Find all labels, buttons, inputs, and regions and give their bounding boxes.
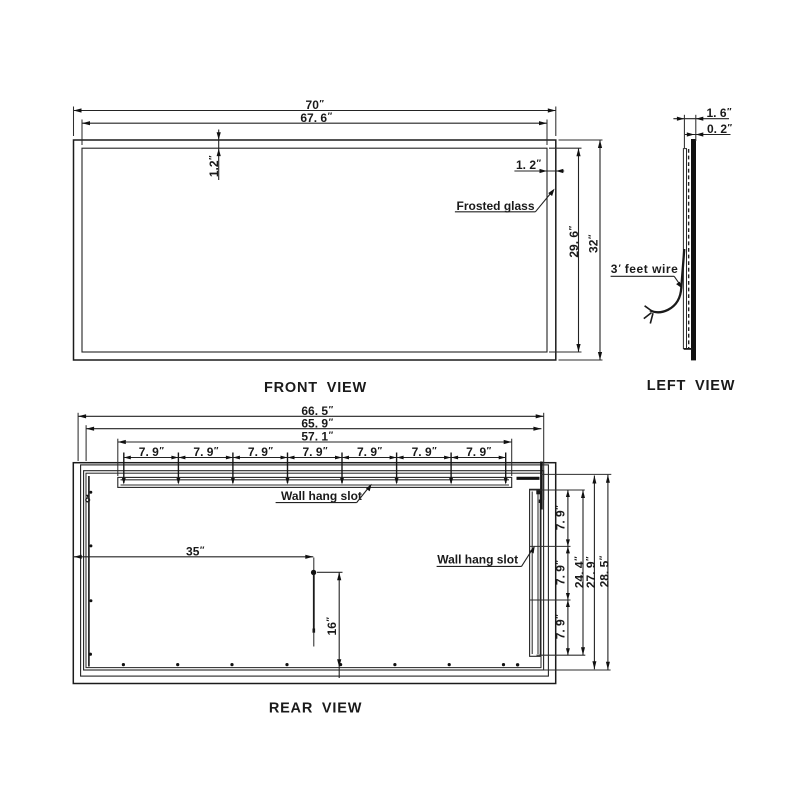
svg-text:FRONT VIEW: FRONT VIEW <box>264 380 367 396</box>
svg-text:LEFT VIEW: LEFT VIEW <box>647 378 736 394</box>
svg-text:Wall hang slot: Wall hang slot <box>437 553 518 567</box>
svg-text:REAR VIEW: REAR VIEW <box>269 701 362 717</box>
svg-text:Frosted glass: Frosted glass <box>457 199 535 213</box>
svg-text:Wall hang slot: Wall hang slot <box>281 489 362 503</box>
svg-text:3′ feet wire: 3′ feet wire <box>611 262 679 276</box>
